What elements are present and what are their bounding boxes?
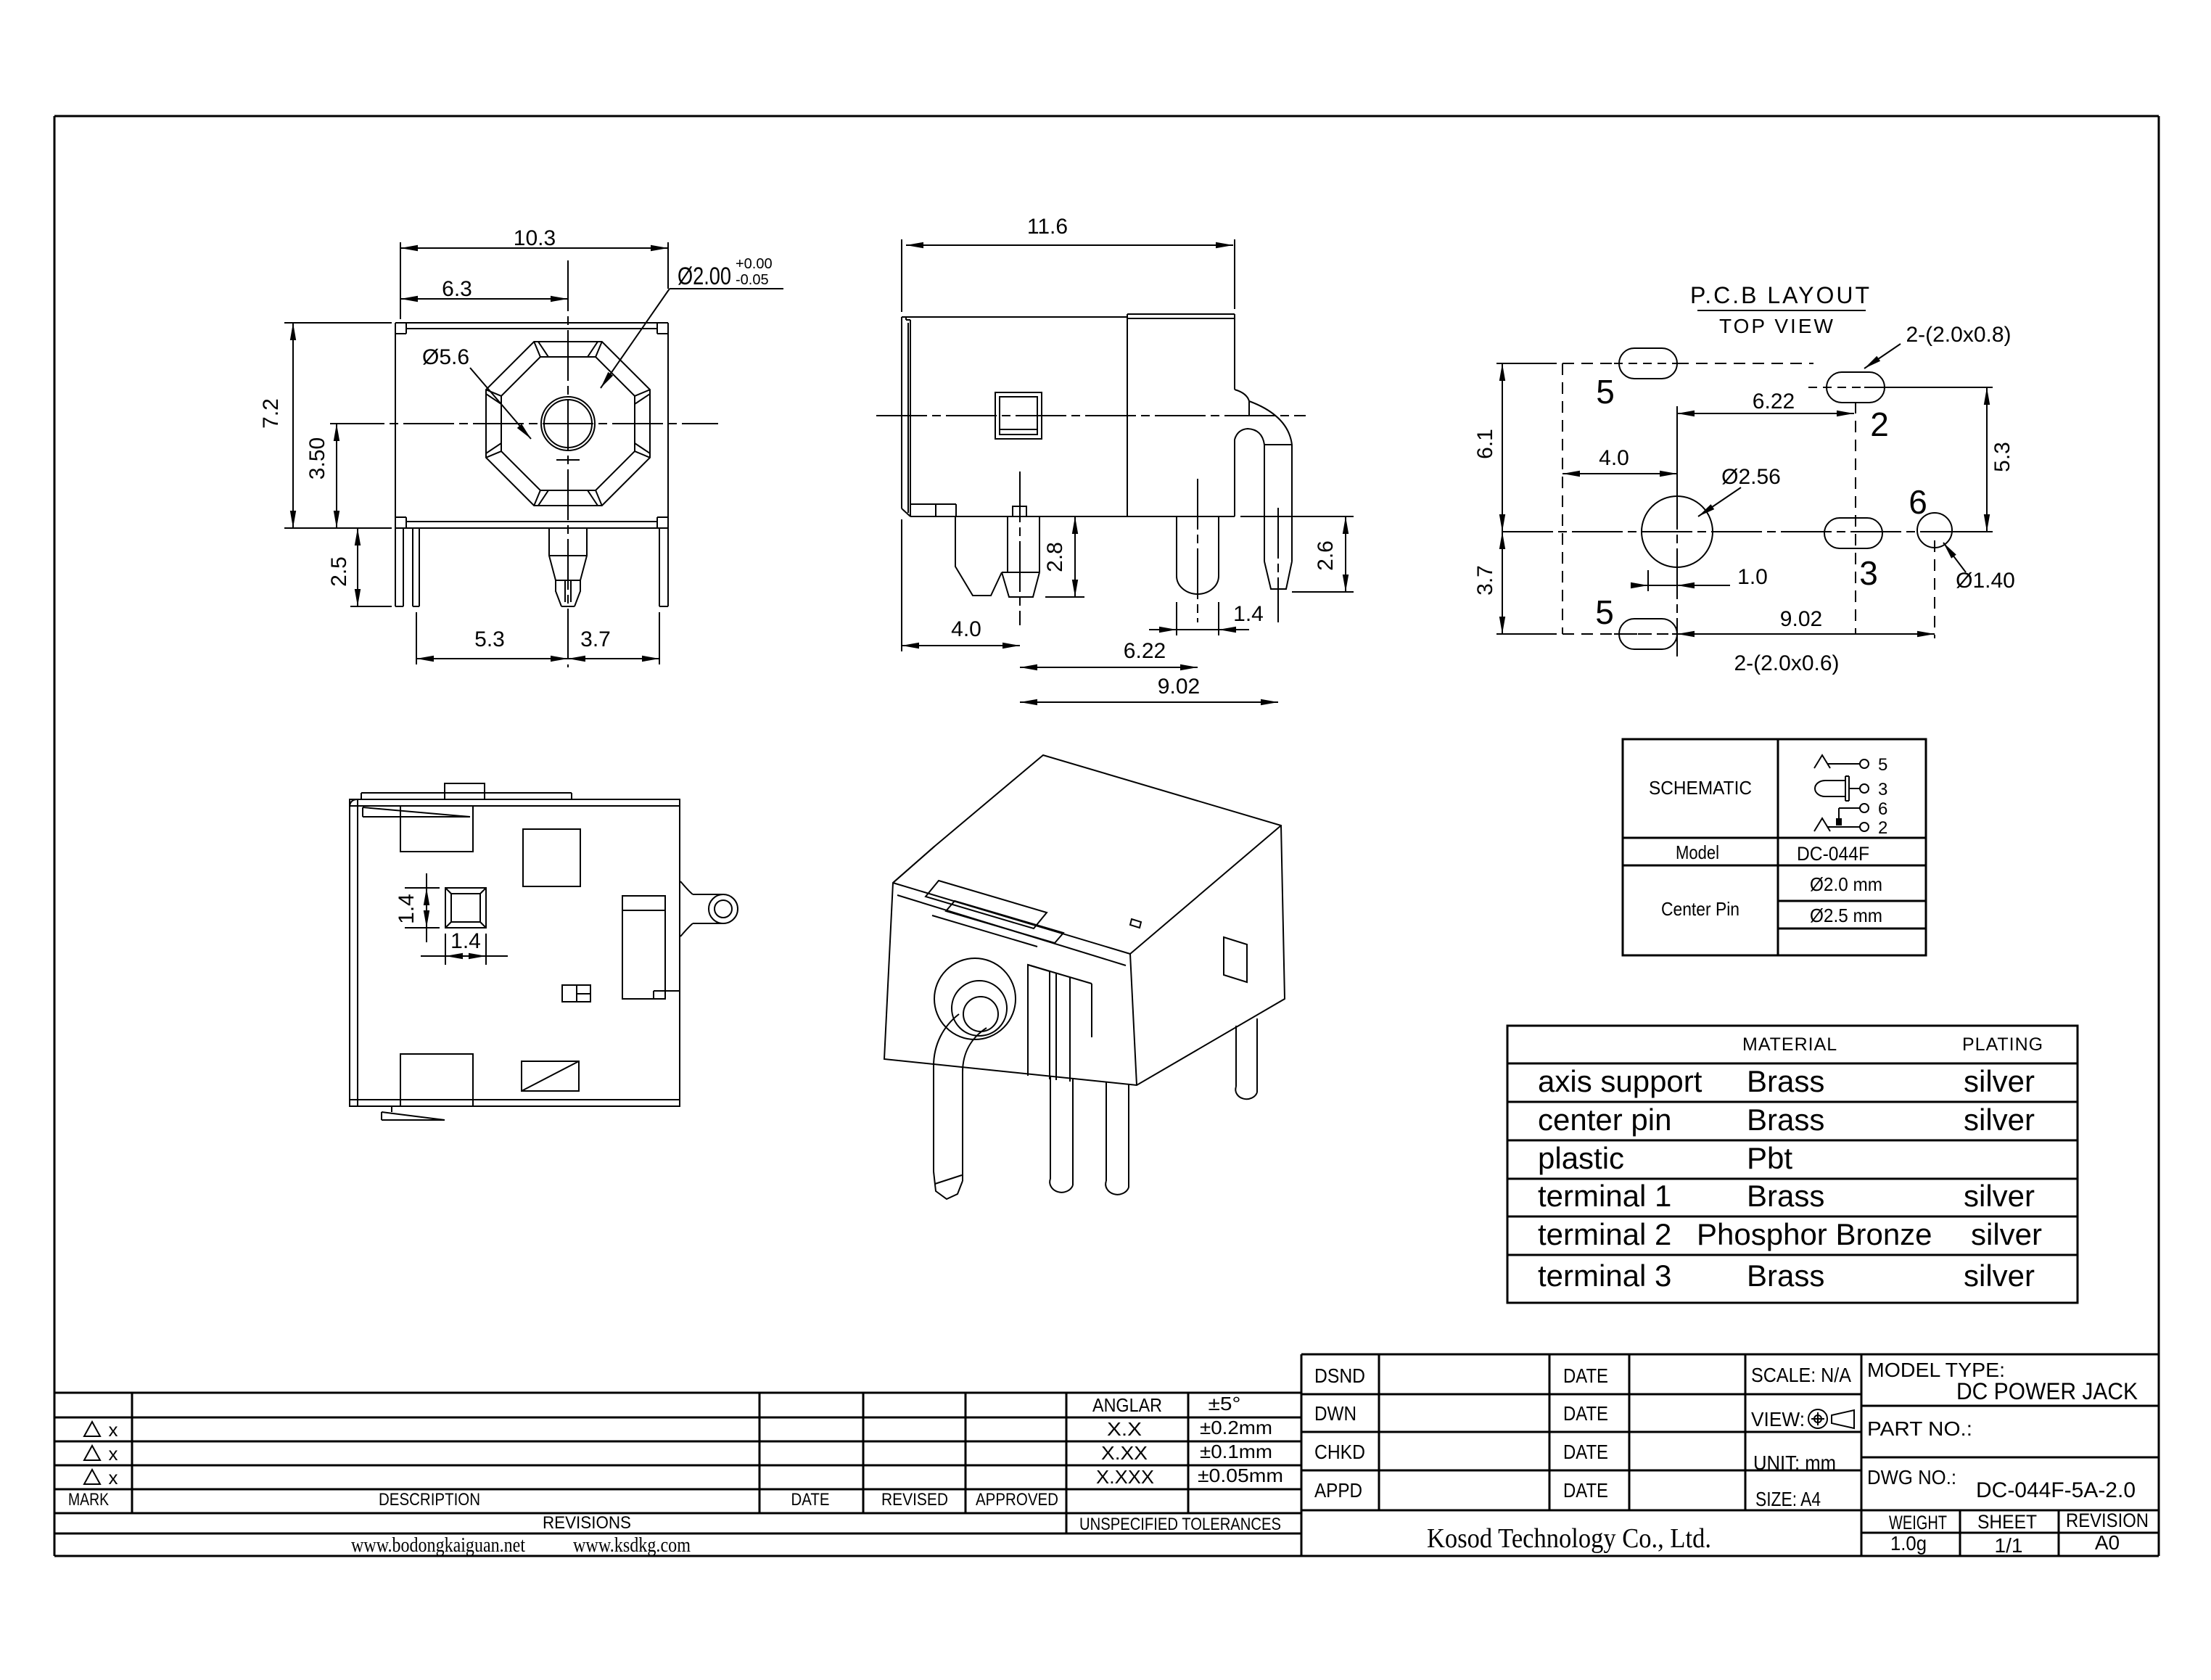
svg-text:SIZE: A4: SIZE: A4 (1755, 1488, 1821, 1510)
svg-text:X.XXX: X.XXX (1096, 1466, 1154, 1488)
svg-text:7.2: 7.2 (259, 398, 283, 429)
svg-text:2: 2 (1878, 818, 1887, 838)
svg-text:Pbt: Pbt (1747, 1141, 1792, 1175)
svg-text:P.C.B LAYOUT: P.C.B LAYOUT (1690, 282, 1872, 308)
svg-text:www.bodongkaiguan.net: www.bodongkaiguan.net (351, 1534, 525, 1557)
svg-text:TOP VIEW: TOP VIEW (1719, 315, 1835, 337)
svg-text:DESCRIPTION: DESCRIPTION (379, 1490, 480, 1510)
svg-text:±0.1mm: ±0.1mm (1200, 1441, 1272, 1462)
svg-text:DATE: DATE (1563, 1364, 1608, 1387)
svg-text:APPROVED: APPROVED (976, 1490, 1058, 1510)
svg-text:silver: silver (1964, 1259, 2035, 1293)
svg-text:DATE: DATE (1563, 1479, 1608, 1502)
svg-text:REVISED: REVISED (881, 1490, 948, 1510)
svg-text:2.5: 2.5 (327, 556, 351, 587)
svg-text:SHEET: SHEET (1977, 1511, 2037, 1533)
svg-text:silver: silver (1964, 1179, 2035, 1213)
svg-text:Ø1.40: Ø1.40 (1956, 569, 2015, 593)
svg-text:axis support: axis support (1538, 1064, 1702, 1098)
svg-text:Ø2.5 mm: Ø2.5 mm (1810, 905, 1882, 926)
svg-text:MARK: MARK (68, 1490, 109, 1510)
svg-text:4.0: 4.0 (1599, 446, 1629, 470)
svg-text:±5°: ±5° (1209, 1393, 1241, 1415)
svg-text:ANGLAR: ANGLAR (1092, 1394, 1162, 1416)
svg-text:plastic: plastic (1538, 1141, 1624, 1175)
svg-text:3: 3 (1878, 780, 1887, 799)
svg-text:6: 6 (1909, 483, 1927, 521)
svg-text:DWN: DWN (1314, 1402, 1356, 1425)
svg-text:DWG NO.:: DWG NO.: (1867, 1466, 1956, 1488)
svg-text:terminal 3: terminal 3 (1538, 1259, 1671, 1293)
svg-text:www.ksdkg.com: www.ksdkg.com (573, 1534, 691, 1557)
svg-text:center pin: center pin (1538, 1103, 1671, 1137)
svg-text:5.3: 5.3 (474, 627, 505, 651)
svg-text:11.6: 11.6 (1027, 215, 1068, 239)
svg-text:x: x (109, 1467, 118, 1488)
svg-text:Center Pin: Center Pin (1661, 898, 1739, 920)
svg-text:Ø5.6: Ø5.6 (422, 345, 469, 369)
svg-text:9.02: 9.02 (1780, 607, 1822, 631)
svg-text:5: 5 (1878, 755, 1887, 775)
svg-text:x: x (109, 1443, 118, 1465)
svg-text:DC POWER JACK: DC POWER JACK (1956, 1378, 2138, 1404)
svg-text:Model: Model (1676, 841, 1719, 863)
svg-text:terminal 2: terminal 2 (1538, 1217, 1671, 1251)
svg-text:5.3: 5.3 (1990, 442, 2014, 472)
svg-text:1.4: 1.4 (1233, 602, 1264, 626)
svg-text:x: x (109, 1419, 118, 1441)
svg-text:6.22: 6.22 (1753, 390, 1795, 413)
svg-text:6.22: 6.22 (1124, 639, 1166, 663)
svg-text:DATE: DATE (1563, 1402, 1608, 1425)
svg-text:±0.05mm: ±0.05mm (1198, 1465, 1283, 1486)
svg-text:5: 5 (1595, 593, 1614, 631)
svg-text:2-(2.0x0.8): 2-(2.0x0.8) (1906, 323, 2011, 347)
svg-text:WEIGHT: WEIGHT (1889, 1512, 1947, 1533)
svg-text:MATERIAL: MATERIAL (1742, 1034, 1837, 1055)
svg-text:UNIT: mm: UNIT: mm (1753, 1452, 1836, 1474)
svg-text:2.8: 2.8 (1043, 542, 1067, 572)
svg-text:1.4: 1.4 (395, 894, 419, 924)
svg-text:CHKD: CHKD (1314, 1441, 1365, 1463)
svg-text:Brass: Brass (1747, 1179, 1824, 1213)
svg-text:2: 2 (1870, 405, 1889, 443)
svg-text:Brass: Brass (1747, 1103, 1824, 1137)
svg-text:3: 3 (1859, 554, 1878, 592)
svg-text:silver: silver (1964, 1064, 2035, 1098)
svg-text:-0.05: -0.05 (736, 272, 769, 288)
svg-text:PLATING: PLATING (1962, 1034, 2043, 1055)
svg-text:±0.2mm: ±0.2mm (1200, 1417, 1272, 1438)
svg-text:Ø2.0 mm: Ø2.0 mm (1810, 873, 1882, 895)
svg-text:DC-044F: DC-044F (1797, 843, 1869, 865)
svg-text:6.3: 6.3 (442, 277, 472, 301)
svg-text:Ø2.00: Ø2.00 (678, 263, 731, 290)
svg-text:6.1: 6.1 (1473, 429, 1497, 459)
svg-text:DATE: DATE (791, 1490, 830, 1510)
svg-text:Brass: Brass (1747, 1259, 1824, 1293)
svg-text:DC-044F-5A-2.0: DC-044F-5A-2.0 (1976, 1478, 2136, 1502)
svg-text:REVISION: REVISION (2066, 1510, 2149, 1531)
svg-text:1/1: 1/1 (1995, 1534, 2023, 1557)
svg-text:2-(2.0x0.6): 2-(2.0x0.6) (1734, 651, 1839, 675)
svg-text:terminal 1: terminal 1 (1538, 1179, 1671, 1213)
svg-text:10.3: 10.3 (514, 226, 556, 250)
svg-text:X.X: X.X (1107, 1418, 1142, 1440)
svg-text:Phosphor Bronze: Phosphor Bronze (1697, 1217, 1932, 1251)
svg-text:UNSPECIFIED TOLERANCES: UNSPECIFIED TOLERANCES (1079, 1515, 1281, 1534)
svg-text:1.0: 1.0 (1737, 565, 1768, 589)
svg-text:4.0: 4.0 (951, 617, 981, 641)
svg-text:silver: silver (1971, 1217, 2042, 1251)
svg-text:SCHEMATIC: SCHEMATIC (1649, 777, 1752, 799)
svg-text:5: 5 (1596, 373, 1615, 411)
svg-text:Ø2.56: Ø2.56 (1721, 465, 1781, 489)
svg-text:REVISIONS: REVISIONS (543, 1513, 631, 1533)
svg-text:1.0g: 1.0g (1890, 1532, 1927, 1555)
svg-text:DATE: DATE (1563, 1441, 1608, 1463)
svg-text:3.7: 3.7 (1473, 565, 1497, 596)
svg-text:A0: A0 (2095, 1531, 2120, 1554)
svg-text:VIEW:: VIEW: (1751, 1408, 1805, 1430)
svg-text:PART NO.:: PART NO.: (1867, 1417, 1972, 1440)
svg-text:3.7: 3.7 (580, 627, 611, 651)
svg-text:6: 6 (1878, 799, 1887, 819)
svg-text:2.6: 2.6 (1314, 540, 1338, 571)
svg-text:APPD: APPD (1314, 1479, 1362, 1502)
svg-text:+0.00: +0.00 (736, 256, 773, 272)
svg-text:SCALE: N/A: SCALE: N/A (1751, 1364, 1851, 1386)
svg-text:Brass: Brass (1747, 1064, 1824, 1098)
svg-text:DSND: DSND (1314, 1364, 1365, 1387)
svg-text:9.02: 9.02 (1158, 675, 1200, 699)
svg-text:Kosod Technology Co., Ltd.: Kosod Technology Co., Ltd. (1427, 1523, 1711, 1554)
svg-text:1.4: 1.4 (450, 929, 481, 953)
svg-text:X.XX: X.XX (1101, 1442, 1148, 1464)
svg-text:silver: silver (1964, 1103, 2035, 1137)
svg-text:3.50: 3.50 (305, 437, 329, 479)
